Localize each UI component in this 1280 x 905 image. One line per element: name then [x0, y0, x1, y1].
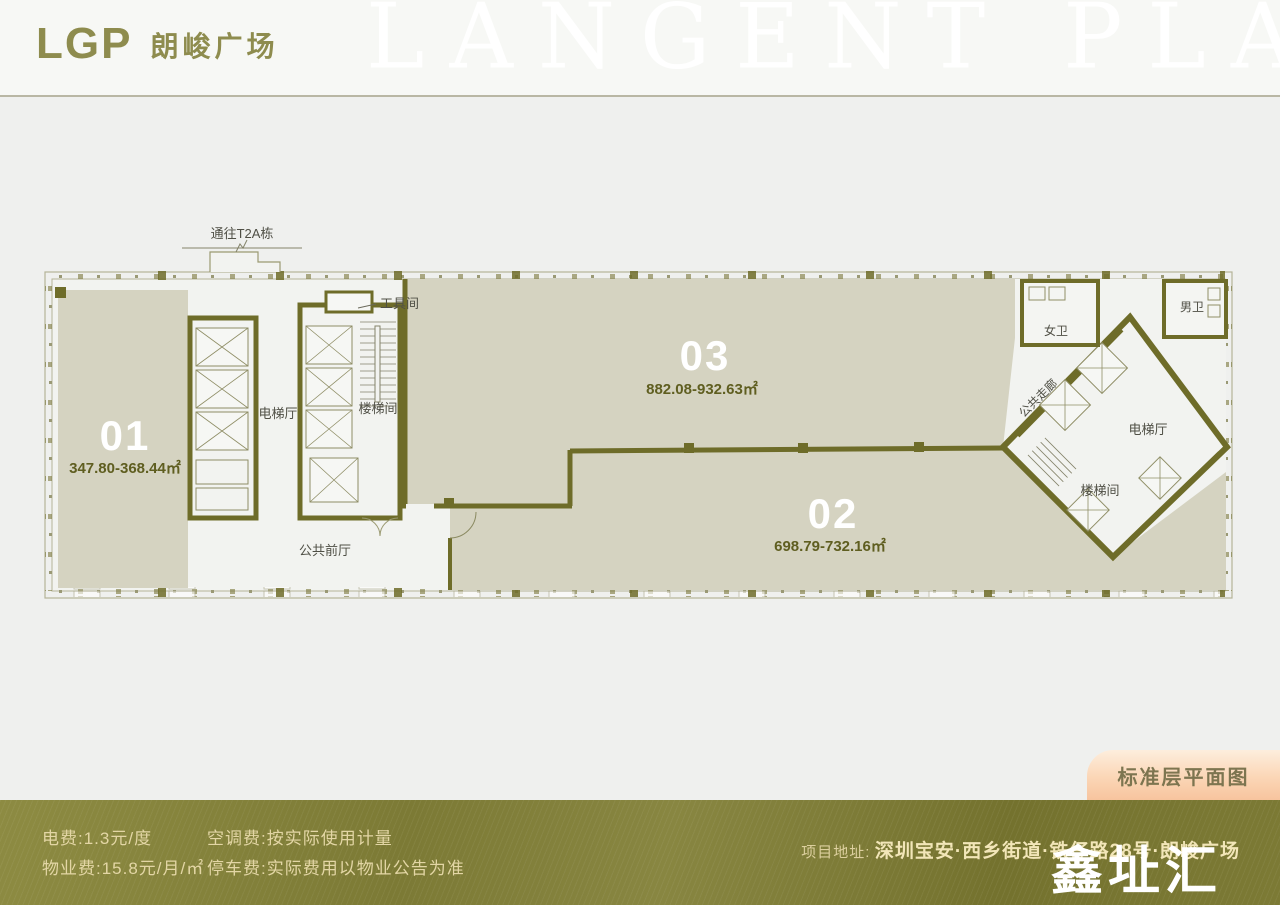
brand-logo: LGP 朗峻广场 — [36, 22, 278, 66]
unit-03-area: 882.08-932.63㎡ — [646, 380, 758, 398]
t2a-label: 通往T2A栋 — [211, 226, 274, 241]
address-label: 项目地址: — [801, 844, 870, 861]
page: LANGENT PLAZA LGP 朗峻广场 — [0, 0, 1280, 905]
unit-02-number: 02 — [808, 490, 859, 537]
elevator-bank-left — [190, 318, 256, 518]
logo-lgp-text: LGP — [36, 22, 132, 66]
corner-column — [55, 287, 66, 298]
plan-type-badge: 标准层平面图 — [1087, 750, 1280, 800]
plan-canvas: 通往T2A栋 — [0, 97, 1280, 800]
tool-room — [326, 292, 372, 312]
women-wc-label: 女卫 — [1044, 323, 1068, 338]
fee-column-2: 空调费:按实际使用计量 停车费:实际费用以物业公告为准 — [207, 824, 465, 884]
fee-parking: 停车费:实际费用以物业公告为准 — [207, 854, 465, 884]
header: LANGENT PLAZA LGP 朗峻广场 — [0, 0, 1280, 97]
stairwell-left-label: 楼梯间 — [358, 401, 397, 416]
elevator-hall-right-label: 电梯厅 — [1128, 422, 1167, 437]
logo-brand-name: 朗峻广场 — [150, 27, 278, 61]
lobby-label: 公共前厅 — [299, 543, 351, 558]
header-watermark: LANGENT PLAZA — [366, 0, 1280, 89]
floor-plan-svg: 通往T2A栋 — [40, 210, 1240, 610]
fee-column-1: 电费:1.3元/度 物业费:15.8元/月/㎡ — [42, 824, 204, 884]
fee-electricity: 电费:1.3元/度 — [42, 824, 204, 854]
unit-02-area: 698.79-732.16㎡ — [774, 537, 886, 555]
stairwell-right-label: 楼梯间 — [1080, 483, 1119, 498]
fee-ac: 空调费:按实际使用计量 — [207, 824, 465, 854]
stair-rail — [375, 326, 380, 402]
elevator-hall-left-label: 电梯厅 — [258, 406, 297, 421]
watermark-xinzhihui: 鑫址汇 — [1051, 846, 1222, 898]
footer-bar: 电费:1.3元/度 物业费:15.8元/月/㎡ 空调费:按实际使用计量 停车费:… — [0, 800, 1280, 905]
t2a-corridor: 通往T2A栋 — [182, 226, 302, 272]
fee-property: 物业费:15.8元/月/㎡ — [42, 854, 204, 884]
men-wc-label: 男卫 — [1180, 300, 1204, 314]
unit-01-number: 01 — [100, 412, 151, 459]
unit-03-number: 03 — [680, 332, 731, 379]
unit-01-area: 347.80-368.44㎡ — [69, 459, 181, 477]
tool-room-label: 工具间 — [380, 296, 419, 311]
